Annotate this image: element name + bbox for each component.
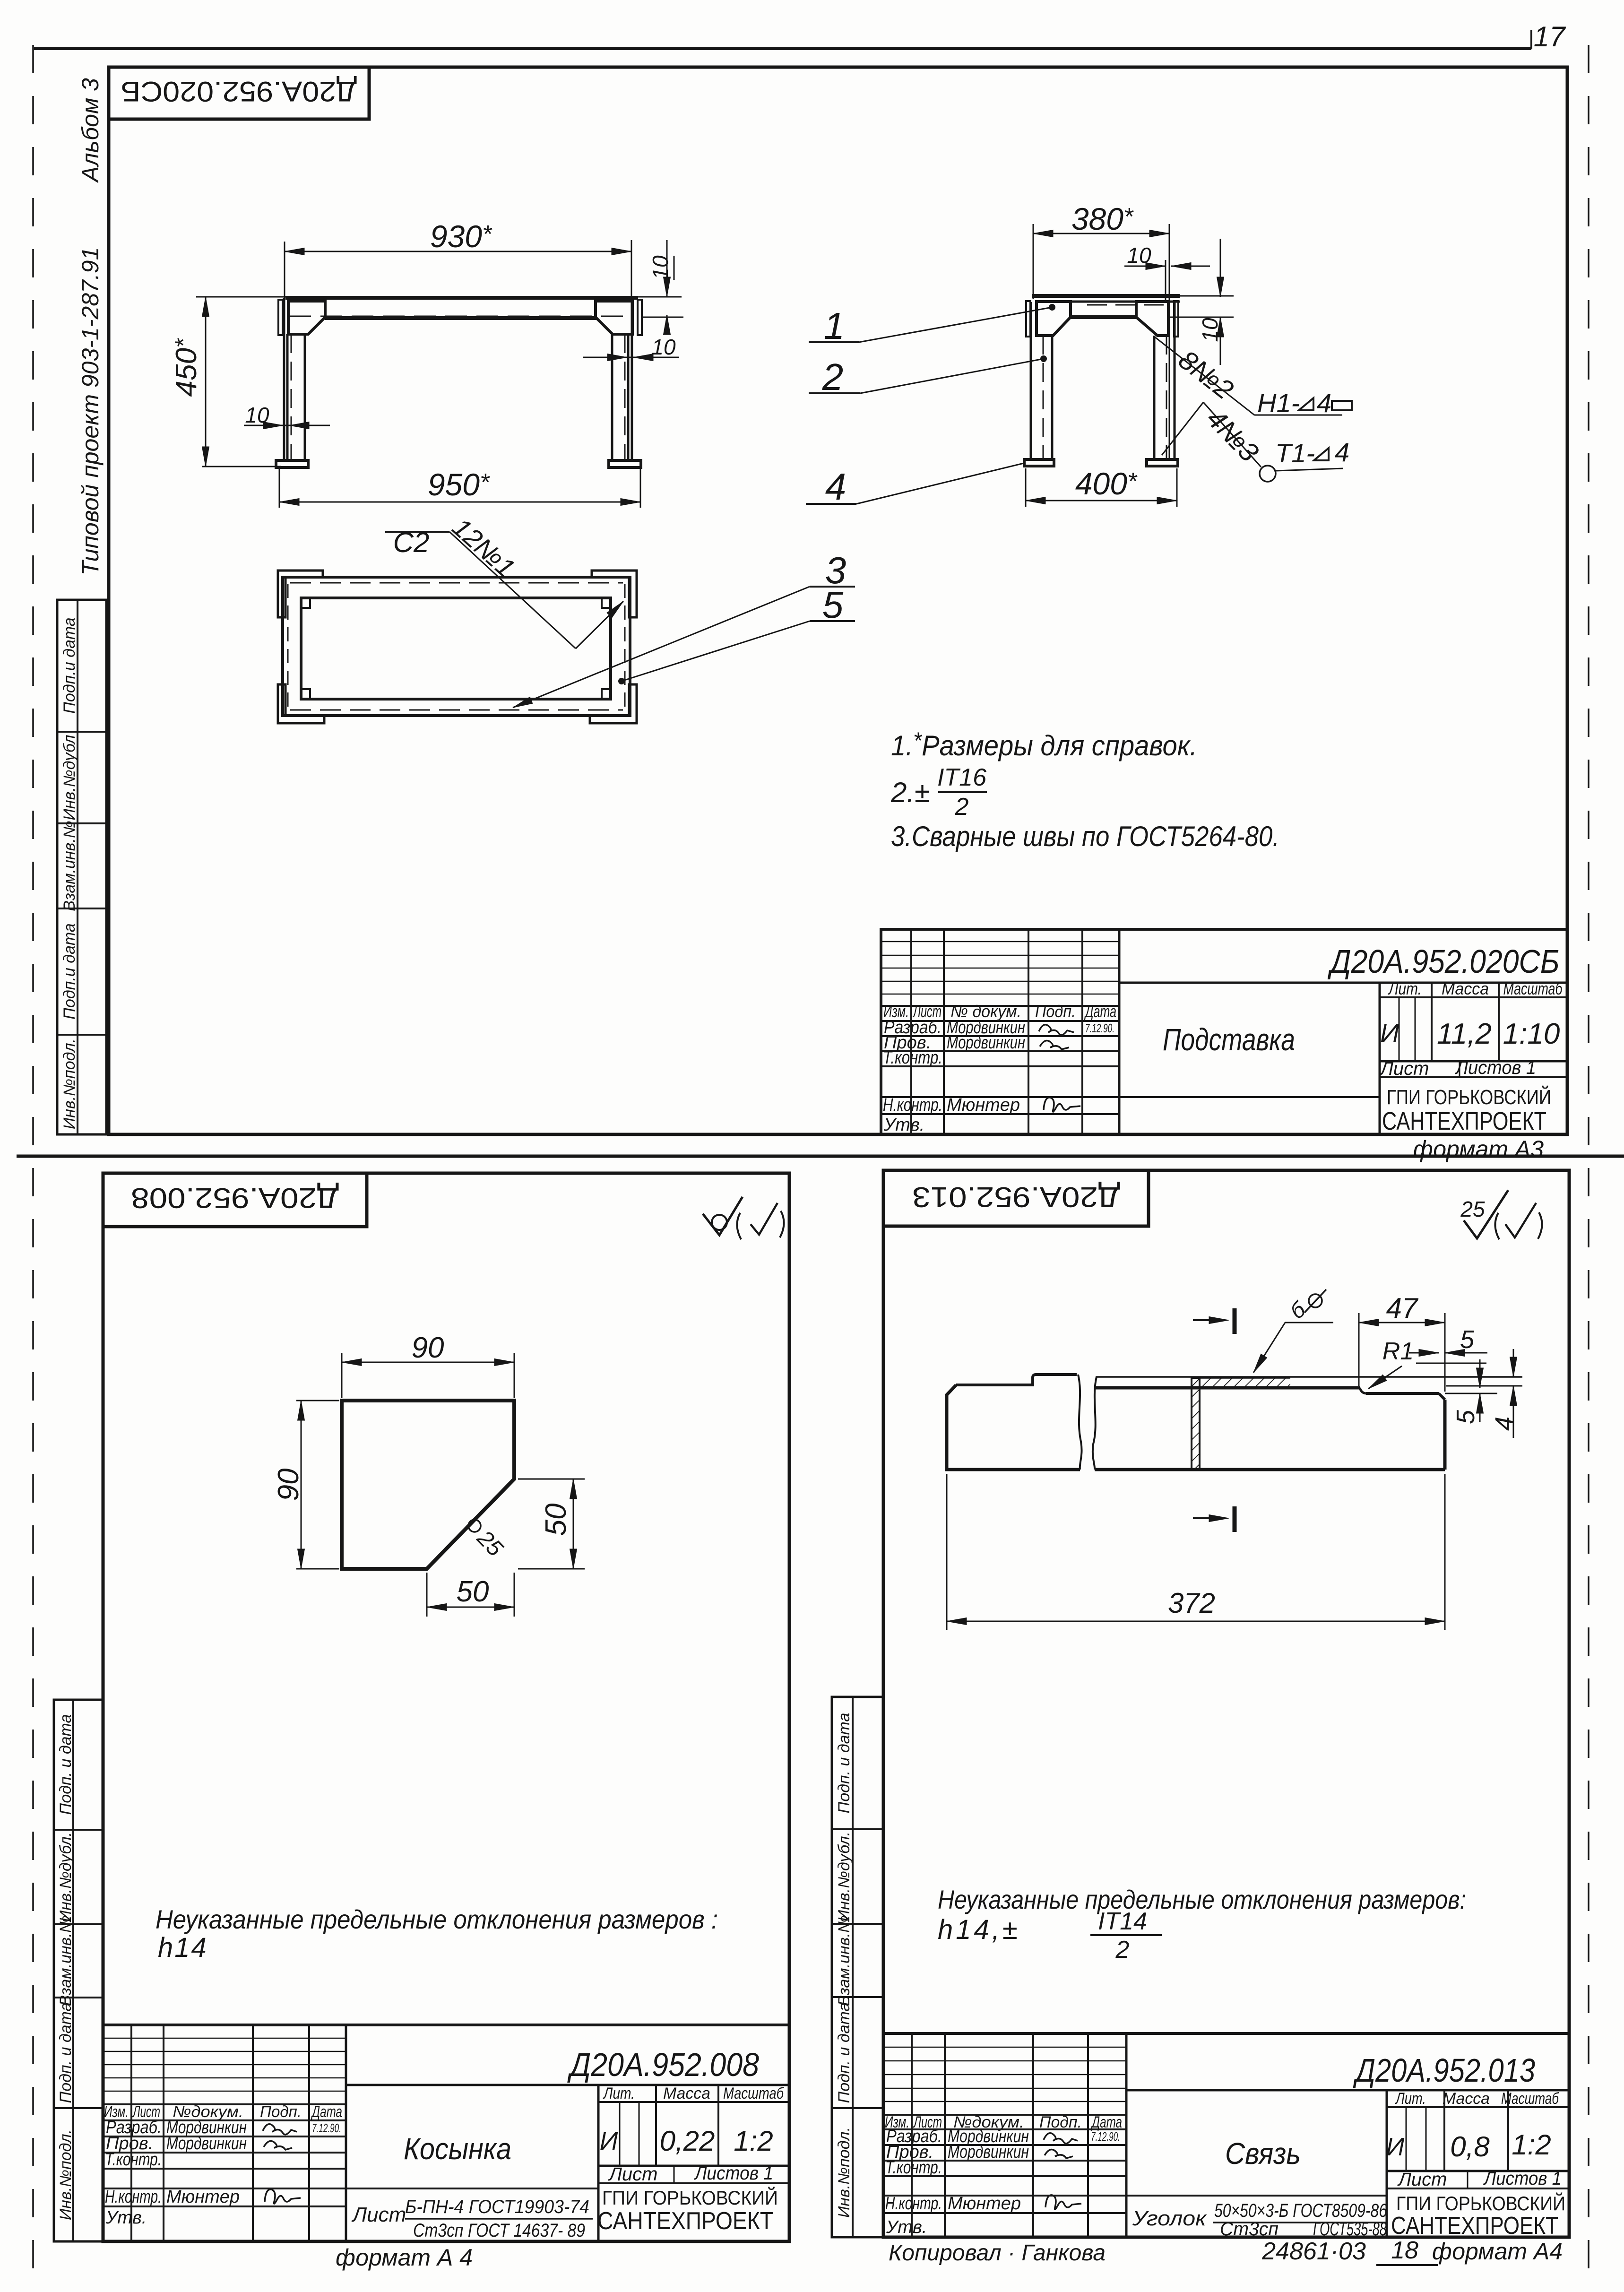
svg-text:Т.контр.: Т.контр. [883,1048,942,1068]
svg-text:18: 18 [1391,2237,1418,2264]
svg-text:372: 372 [1168,1587,1215,1619]
svg-text:50×50×3-Б ГОСТ8509-86: 50×50×3-Б ГОСТ8509-86 [1214,2200,1388,2221]
svg-text:Типовой проект 903-1-287.91: Типовой проект 903-1-287.91 [77,247,104,576]
svg-text:Масса: Масса [1442,979,1489,998]
svg-text:Лист: Лист [1397,2169,1447,2190]
svg-text:Лит.: Лит. [1395,2090,1426,2108]
svg-text:7.12.90.: 7.12.90. [1085,1021,1114,1035]
svg-text:5: 5 [822,584,844,626]
svg-text:Альбом 3: Альбом 3 [77,78,104,183]
svg-text:Инв.№дубл.: Инв.№дубл. [57,1832,75,1922]
svg-text:h14: h14 [158,1932,208,1963]
svg-text:Подп. и дата: Подп. и дата [835,2003,853,2103]
svg-text:1:2: 1:2 [734,2125,773,2157]
svg-text:Связь: Связь [1225,2136,1301,2171]
svg-text:Подп. и дата: Подп. и дата [57,2003,75,2103]
svg-text:2.±: 2.± [890,777,930,808]
svg-text:IT16: IT16 [937,764,986,791]
svg-text:25: 25 [1460,1197,1485,1221]
svg-text:h14,±: h14,± [938,1914,1020,1945]
svg-text:50: 50 [540,1504,572,1536]
svg-text:4: 4 [1317,388,1331,418]
svg-text:Утв.: Утв. [883,1115,924,1135]
svg-text:Взам.инв.№: Взам.инв.№ [60,821,78,911]
svg-text:Подп.: Подп. [260,2103,302,2121]
svg-text:Ст3сп ГОСТ 14637- 89: Ст3сп ГОСТ 14637- 89 [413,2220,585,2241]
svg-text:7.12.90.: 7.12.90. [312,2121,341,2135]
svg-text:10: 10 [1198,318,1222,342]
svg-text:Косынка: Косынка [404,2132,511,2166]
svg-text:2: 2 [822,356,844,398]
svg-text:3.Сварные швы по ГОСТ5264-8: 3.Сварные швы по ГОСТ5264-80. [891,821,1279,852]
svg-text:17: 17 [1534,21,1566,52]
svg-text:Взам.инв.№: Взам.инв.№ [835,1915,853,2006]
svg-text:Подп.: Подп. [1039,2113,1082,2131]
svg-text:10: 10 [245,403,269,427]
svg-text:Масса: Масса [663,2084,710,2102]
svg-text:Дата: Дата [1084,1002,1116,1021]
svg-text:Т.контр.: Т.контр. [885,2158,942,2178]
svg-text:Листов 1: Листов 1 [693,2163,773,2184]
svg-text:7.12.90.: 7.12.90. [1091,2129,1120,2144]
svg-text:Подставка: Подставка [1163,1022,1295,1057]
svg-text:И: И [1380,1018,1399,1048]
svg-text:R1: R1 [1382,1338,1414,1365]
svg-text:47: 47 [1386,1292,1419,1324]
svg-text:Т.контр.: Т.контр. [105,2150,162,2170]
svg-text:И: И [600,2127,618,2155]
svg-text:Инв.№подл.: Инв.№подл. [57,2129,75,2220]
svg-text:формат А4: формат А4 [1432,2238,1563,2265]
svg-text:Инв.№дубл: Инв.№дубл [60,735,78,821]
svg-text:5: 5 [1451,1410,1480,1424]
svg-text:САНТЕХПРОЕКТ: САНТЕХПРОЕКТ [1382,1107,1546,1135]
svg-text:Подп. и дата: Подп. и дата [57,1714,75,1815]
svg-text:Листов 1: Листов 1 [1454,1057,1536,1078]
svg-text:24861·03: 24861·03 [1261,2238,1366,2265]
svg-text:ГПИ ГОРЬКОВСКИЙ: ГПИ ГОРЬКОВСКИЙ [602,2186,778,2209]
svg-text:Копировал · Ганкова: Копировал · Ганкова [889,2240,1106,2266]
svg-text:5: 5 [1460,1325,1475,1354]
svg-text:1.*Размеры для справок.: 1.*Размеры для справок. [891,727,1197,761]
svg-text:Мордвинкин: Мордвинкин [166,2134,247,2154]
svg-text:Мюнтер: Мюнтер [948,2194,1021,2214]
svg-text:Мюнтер: Мюнтер [166,2187,240,2207]
svg-text:Листов 1: Листов 1 [1483,2168,1562,2189]
svg-text:90: 90 [412,1332,444,1364]
svg-text:Лист: Лист [1379,1058,1429,1079]
svg-text:2: 2 [955,793,969,821]
svg-text:2: 2 [1115,1936,1130,1963]
svg-text:Уголок: Уголок [1132,2207,1208,2230]
svg-text:10: 10 [651,335,676,359]
svg-text:Лист: Лист [608,2164,658,2185]
svg-text:Мордвинкин: Мордвинкин [948,2142,1029,2162]
svg-text:ГПИ ГОРЬКОВСКИЙ: ГПИ ГОРЬКОВСКИЙ [1396,2192,1565,2214]
svg-text:4: 4 [1335,437,1349,467]
svg-text:Масса: Масса [1443,2090,1490,2108]
svg-text:Подп.и дата: Подп.и дата [60,923,78,1019]
svg-text:формат А 4: формат А 4 [336,2244,473,2271]
svg-text:Неуказанные предельные откло: Неуказанные предельные отклонения размер… [938,1885,1466,1914]
svg-text:Дата: Дата [1090,2113,1122,2131]
svg-text:Неуказанные предельные откло: Неуказанные предельные отклонения размер… [155,1904,718,1934]
svg-text:10: 10 [648,255,673,280]
svg-text:Лист: Лист [351,2203,406,2226]
svg-text:формат А3: формат А3 [1413,1136,1544,1162]
svg-text:Утв.: Утв. [105,2208,147,2228]
svg-text:Масштаб: Масштаб [723,2084,785,2102]
svg-text:Подп.: Подп. [1035,1002,1076,1021]
svg-text:Мордвинкин: Мордвинкин [947,1033,1025,1053]
svg-text:САНТЕХПРОЕКТ: САНТЕХПРОЕКТ [1391,2212,1558,2240]
svg-text:0,22: 0,22 [660,2125,715,2157]
svg-text:Т1-: Т1- [1275,438,1315,468]
svg-text:Ст3сп: Ст3сп [1220,2219,1278,2240]
svg-text:10: 10 [1127,243,1151,268]
svg-text:Подп.и дата: Подп.и дата [60,617,78,713]
svg-text:Инв.№подл.: Инв.№подл. [835,2127,853,2218]
svg-text:90: 90 [272,1469,305,1501]
svg-text:Д20А.952.020СБ: Д20А.952.020СБ [1327,943,1559,980]
svg-text:Мюнтер: Мюнтер [947,1095,1020,1115]
svg-text:Д20А.952.008: Д20А.952.008 [567,2046,759,2083]
svg-text:IT14: IT14 [1098,1908,1147,1935]
svg-text:Подп. и дата: Подп. и дата [835,1713,853,1814]
svg-text:1: 1 [824,305,845,347]
svg-text:4: 4 [1490,1417,1519,1431]
svg-text:Н.контр.: Н.контр. [885,2194,942,2214]
svg-text:Лит.: Лит. [1388,979,1422,998]
svg-text:Утв.: Утв. [886,2217,927,2237]
svg-text:0,8: 0,8 [1450,2131,1490,2162]
svg-text:Взам.инв.№: Взам.инв.№ [57,1915,75,2006]
svg-text:Масштаб: Масштаб [1501,2090,1559,2108]
svg-text:Инв.№подл.: Инв.№подл. [60,1038,78,1129]
svg-text:Д20А.952.013: Д20А.952.013 [912,1181,1120,1213]
svg-text:1:10: 1:10 [1503,1018,1560,1050]
svg-text:Д20А.952.008: Д20А.952.008 [131,1182,339,1214]
svg-text:И: И [1386,2133,1405,2161]
svg-text:С2: С2 [393,527,430,558]
svg-text:11,2: 11,2 [1437,1018,1492,1050]
svg-text:Д20А.952.020СБ: Д20А.952.020СБ [121,76,357,107]
svg-text:4: 4 [825,466,847,508]
svg-text:Д20А.952.013: Д20А.952.013 [1353,2052,1535,2089]
svg-text:Масштаб: Масштаб [1503,979,1563,998]
svg-text:Н.контр.: Н.контр. [883,1095,942,1115]
svg-text:САНТЕХПРОЕКТ: САНТЕХПРОЕКТ [597,2207,773,2235]
svg-text:ГПИ ГОРЬКОВСКИЙ: ГПИ ГОРЬКОВСКИЙ [1387,1085,1551,1109]
svg-text:50: 50 [457,1575,489,1608]
svg-text:Н.контр.: Н.контр. [105,2187,162,2207]
svg-text:Б-ПН-4 ГОСТ19903-74: Б-ПН-4 ГОСТ19903-74 [405,2197,589,2217]
svg-text:Инв.№дубл.: Инв.№дубл. [835,1832,853,1921]
svg-text:Н1-: Н1- [1257,388,1300,418]
svg-text:ГОСТ535-88: ГОСТ535-88 [1313,2219,1387,2240]
svg-text:Дата: Дата [311,2103,342,2121]
svg-text:Лит.: Лит. [603,2084,635,2102]
svg-text:1:2: 1:2 [1512,2129,1551,2161]
